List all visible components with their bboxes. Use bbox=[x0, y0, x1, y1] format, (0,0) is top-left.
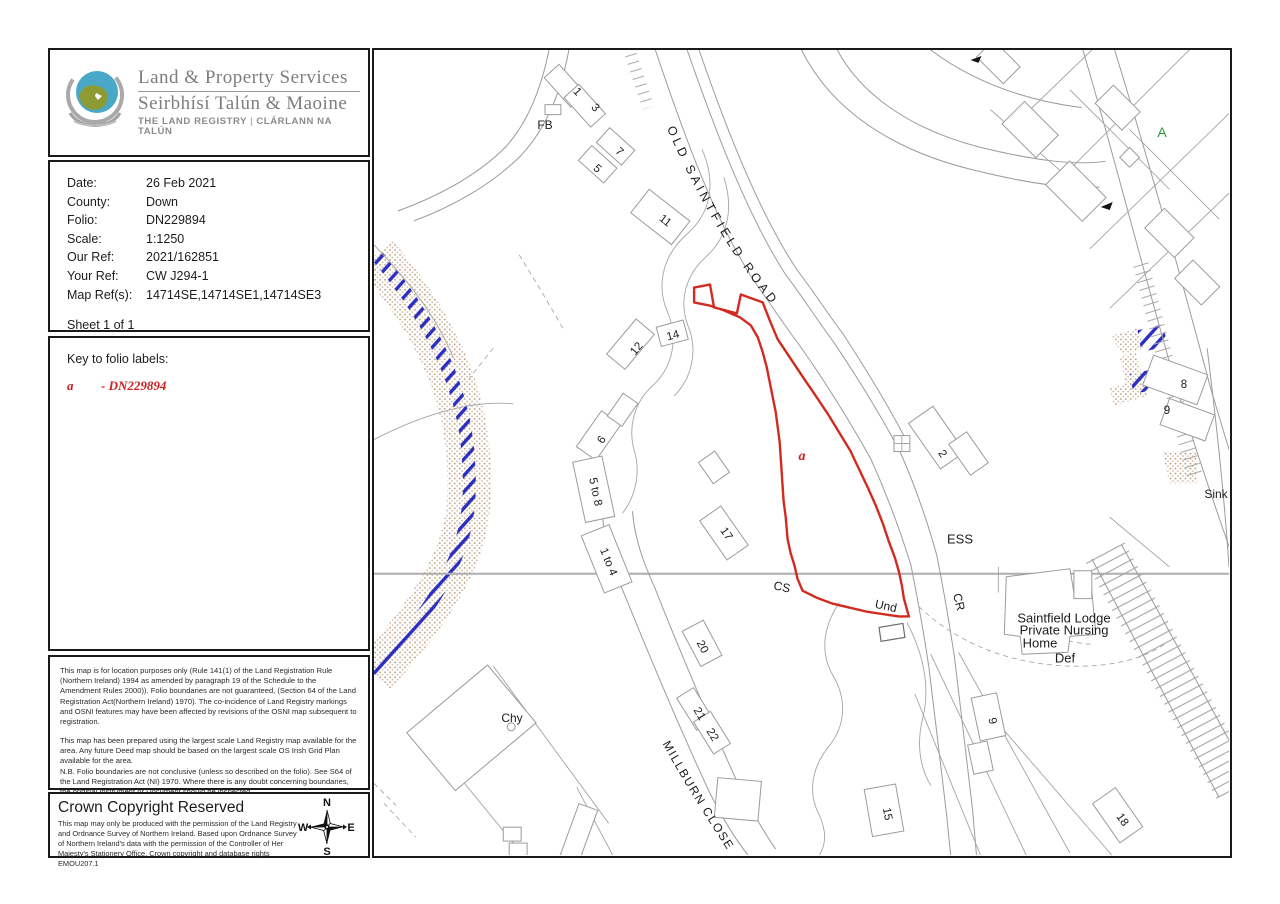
folio-key-entry: a- DN229894 bbox=[67, 378, 368, 394]
details-rows: Date:26 Feb 2021County:DownFolio:DN22989… bbox=[67, 174, 368, 304]
north-compass-icon: N S W E bbox=[296, 797, 358, 857]
logo-box: Land & Property Services Seirbhísí Talún… bbox=[48, 48, 370, 157]
details-box: Date:26 Feb 2021County:DownFolio:DN22989… bbox=[48, 160, 370, 332]
stream-band bbox=[374, 255, 469, 674]
detail-row: Our Ref:2021/162851 bbox=[67, 248, 368, 267]
sheet-number: Sheet 1 of 1 bbox=[67, 316, 368, 334]
detail-row: County:Down bbox=[67, 193, 368, 212]
detail-row: Your Ref:CW J294-1 bbox=[67, 267, 368, 286]
chimney-mark bbox=[507, 723, 515, 731]
map-linework: OLD SAINTFIELD ROAD MILLBURN CLOSE bbox=[374, 50, 1229, 855]
disclaimer-paragraph: This map is for location purposes only (… bbox=[60, 666, 358, 727]
folio-parcel-boundary bbox=[694, 285, 909, 617]
svg-text:N: N bbox=[323, 797, 331, 809]
copyright-box: Crown Copyright Reserved This map may on… bbox=[48, 792, 370, 858]
svg-text:E: E bbox=[347, 822, 354, 834]
benchmark-arrow-icon bbox=[1101, 202, 1113, 210]
detail-row: Date:26 Feb 2021 bbox=[67, 174, 368, 193]
svg-text:W: W bbox=[298, 822, 309, 834]
buildings-layer bbox=[407, 50, 1220, 855]
key-entries: a- DN229894 bbox=[67, 378, 368, 394]
logo-subtitle: Seirbhísí Talún & Maoine bbox=[138, 91, 360, 114]
old-saintfield-road-west-curb bbox=[655, 50, 950, 855]
copyright-body: This map may only be produced with the p… bbox=[58, 819, 298, 869]
und-structure bbox=[879, 623, 905, 641]
svg-text:S: S bbox=[323, 846, 330, 857]
folio-map-sheet: Land & Property Services Seirbhísí Talún… bbox=[0, 0, 1280, 904]
folio-key-box: Key to folio labels: a- DN229894 bbox=[48, 336, 370, 651]
disclaimer-box: This map is for location purposes only (… bbox=[48, 655, 370, 790]
lps-logo-icon bbox=[58, 61, 132, 145]
logo-title: Land & Property Services bbox=[138, 68, 360, 88]
detail-row: Scale:1:1250 bbox=[67, 230, 368, 249]
map-panel: OLD SAINTFIELD ROAD MILLBURN CLOSE FB137… bbox=[372, 48, 1232, 858]
detail-row: Folio:DN229894 bbox=[67, 211, 368, 230]
detail-row: Map Ref(s):14714SE,14714SE1,14714SE3 bbox=[67, 286, 368, 305]
info-panel: Land & Property Services Seirbhísí Talún… bbox=[48, 48, 370, 858]
disclaimer-paragraph: This map has been prepared using the lar… bbox=[60, 736, 358, 767]
logo-tagline: THE LAND REGISTRY|CLÁRLANN NA TALÚN bbox=[138, 117, 360, 137]
key-heading: Key to folio labels: bbox=[67, 352, 368, 366]
